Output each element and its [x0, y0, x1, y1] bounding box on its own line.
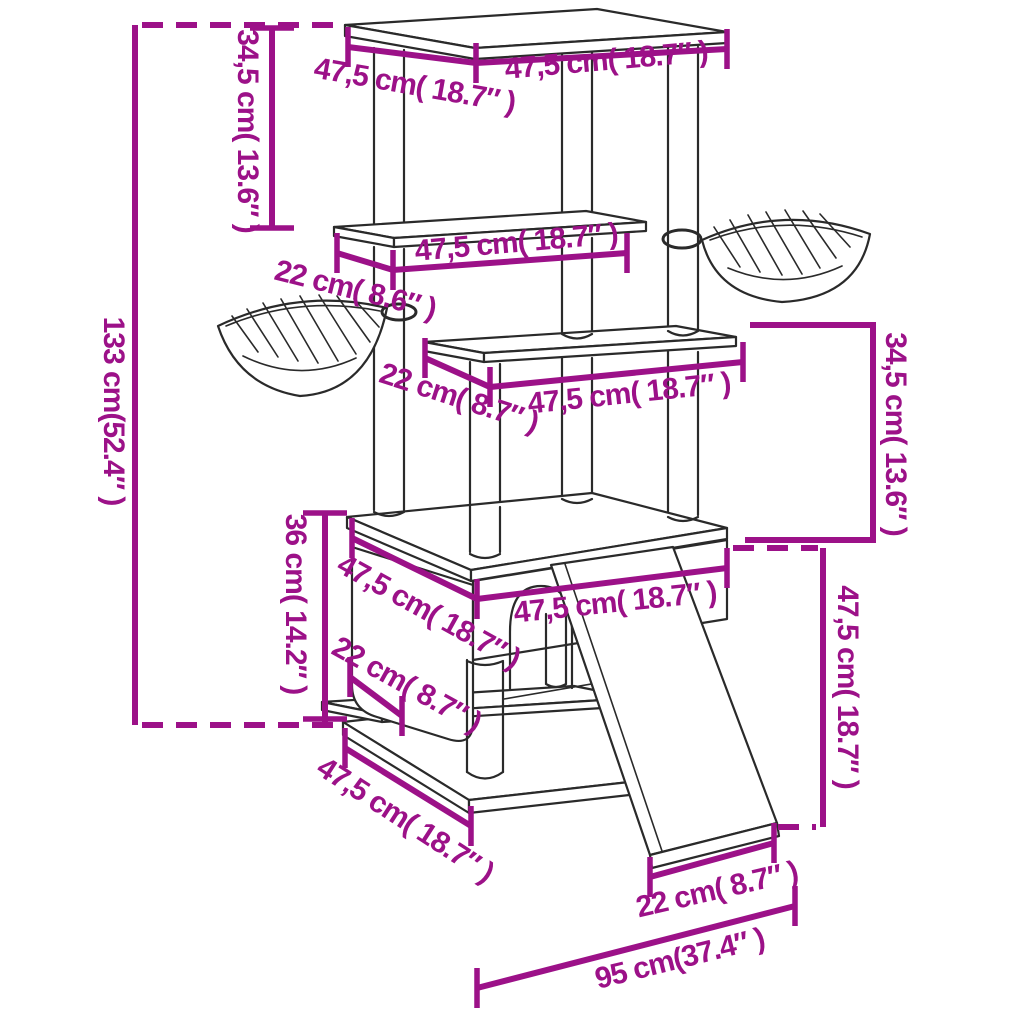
- right-hammock: [663, 210, 870, 302]
- label-right-height: 47,5 cm( 18.7″ ): [831, 585, 864, 789]
- cat-tree-dimension-diagram: 47,5 cm( 18.7″ ) 47,5 cm( 18.7″ ) 34,5 c…: [0, 0, 1024, 1024]
- label-house-height: 36 cm( 14.2″ ): [279, 514, 312, 694]
- label-gap-right: 34,5 cm( 13.6″ ): [879, 332, 912, 536]
- cat-tree-drawing: [218, 9, 870, 868]
- post-right-upper: [668, 45, 698, 334]
- label-total-height: 133 cm(52.4″ ): [97, 317, 130, 506]
- label-upper-gap-left: 34,5 cm( 13.6″ ): [231, 29, 264, 233]
- screenshot-canvas: 47,5 cm( 18.7″ ) 47,5 cm( 18.7″ ) 34,5 c…: [0, 0, 1024, 1024]
- dim-line-gap-right: [745, 325, 873, 540]
- third-platform: [424, 326, 736, 362]
- label-shelf3-depth: 22 cm( 8.7″ ): [375, 357, 542, 439]
- left-hammock-bowl: [218, 301, 387, 396]
